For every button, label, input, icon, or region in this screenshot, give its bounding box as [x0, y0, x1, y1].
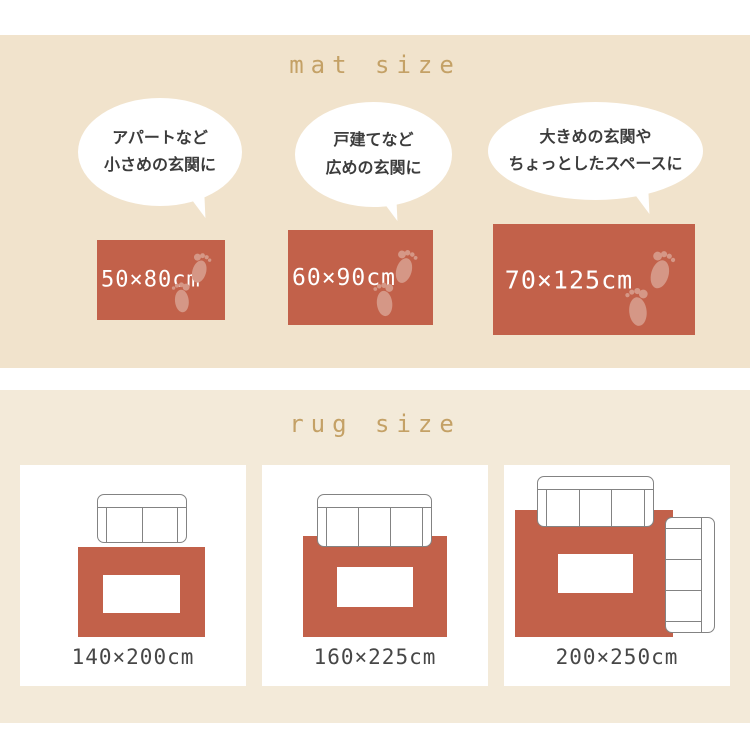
rug-size-section: rug size 140×200cm	[0, 390, 750, 723]
sofa-seat	[547, 490, 579, 526]
rug-card-160x225: 160×225cm	[262, 465, 488, 686]
rug-card-200x250: 200×250cm	[504, 465, 730, 686]
mat-swatch-70x125: 70×125cm	[493, 224, 695, 335]
bubble-line: 小さめの玄関に	[104, 152, 216, 179]
sofa-top-view	[537, 476, 654, 527]
sofa-armrest	[177, 508, 186, 542]
sofa-seat	[390, 508, 422, 546]
bubble-line: アパートなど	[104, 125, 216, 152]
speech-bubble-text: 大きめの玄関や ちょっとしたスペースに	[508, 124, 682, 178]
sofa-armrest	[666, 518, 701, 529]
sofa-backrest	[318, 495, 431, 508]
speech-bubble-large-entrance: 大きめの玄関や ちょっとしたスペースに	[488, 102, 703, 200]
sofa-armrest	[538, 490, 547, 526]
sofa-armrest	[666, 621, 701, 632]
rug-size-label: 200×250cm	[504, 645, 730, 669]
footprints-icon	[369, 242, 425, 318]
sofa-seat	[611, 490, 644, 526]
sofa-armrest	[422, 508, 431, 546]
side-sofa-top-view	[665, 517, 715, 633]
speech-bubble-small-entrance: アパートなど 小さめの玄関に	[78, 98, 242, 206]
sofa-seat	[666, 559, 701, 590]
table-top-view	[337, 567, 413, 607]
bubble-line: ちょっとしたスペースに	[508, 151, 682, 178]
bubble-line: 戸建てなど	[325, 127, 421, 154]
rug-card-140x200: 140×200cm	[20, 465, 246, 686]
sofa-backrest	[98, 495, 186, 508]
sofa-body	[538, 490, 653, 526]
sofa-seat	[327, 508, 358, 546]
sofa-body	[318, 508, 431, 546]
sofa-armrest	[318, 508, 327, 546]
footprints-icon	[167, 246, 219, 314]
mat-size-section: mat size アパートなど 小さめの玄関に 戸建てなど 広めの玄関に 大きめ…	[0, 35, 750, 368]
sofa-seat	[142, 508, 178, 542]
mat-size-label: 70×125cm	[497, 265, 641, 294]
sofa-seat	[666, 529, 701, 559]
size-guide-infographic: mat size アパートなど 小さめの玄関に 戸建てなど 広めの玄関に 大きめ…	[0, 0, 750, 750]
mat-swatch-60x90: 60×90cm	[288, 230, 433, 325]
sofa-top-view	[97, 494, 187, 543]
bubble-line: 大きめの玄関や	[508, 124, 682, 151]
speech-bubble-wide-entrance: 戸建てなど 広めの玄関に	[295, 102, 452, 207]
rug-size-label: 140×200cm	[20, 645, 246, 669]
sofa-armrest	[98, 508, 107, 542]
sofa-seat	[358, 508, 390, 546]
sofa-seat	[666, 590, 701, 621]
sofa-armrest	[644, 490, 653, 526]
mat-size-title: mat size	[0, 51, 750, 79]
sofa-top-view	[317, 494, 432, 547]
sofa-seat	[107, 508, 142, 542]
speech-bubble-text: 戸建てなど 広めの玄関に	[325, 127, 421, 181]
table-top-view	[558, 554, 633, 593]
rug-size-title: rug size	[0, 410, 750, 438]
sofa-seat	[579, 490, 612, 526]
bubble-line: 広めの玄関に	[325, 155, 421, 182]
sofa-backrest	[701, 518, 714, 632]
speech-bubble-text: アパートなど 小さめの玄関に	[104, 125, 216, 179]
sofa-body	[98, 508, 186, 542]
footprints-icon	[621, 242, 683, 328]
mat-swatch-50x80: 50×80cm	[97, 240, 225, 320]
rug-size-label: 160×225cm	[262, 645, 488, 669]
table-top-view	[103, 575, 180, 613]
sofa-backrest	[538, 477, 653, 490]
sofa-body	[666, 518, 701, 632]
